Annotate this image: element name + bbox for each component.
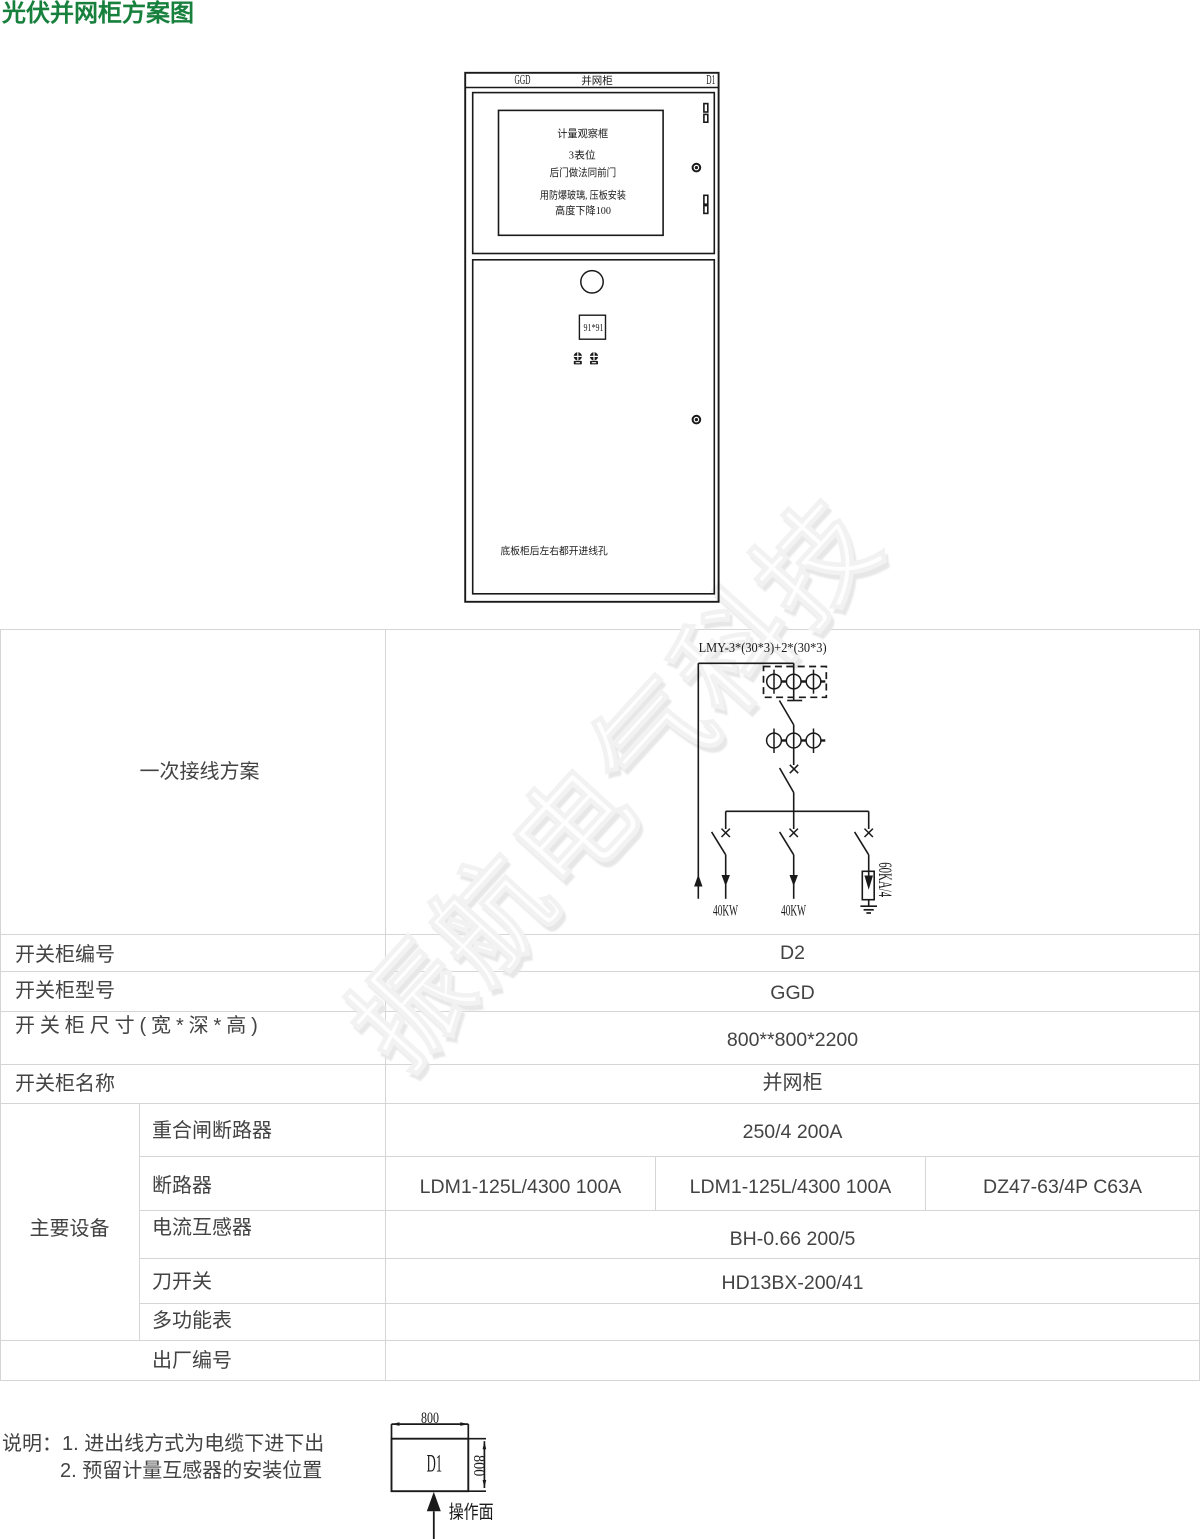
svg-text:800: 800 — [470, 1455, 487, 1477]
svg-text:操作面: 操作面 — [449, 1502, 494, 1523]
svg-text:D1: D1 — [427, 1450, 443, 1477]
svg-text:91*91: 91*91 — [584, 322, 604, 334]
svg-text:60KA/4: 60KA/4 — [874, 862, 895, 897]
svg-text:3表位: 3表位 — [569, 148, 597, 161]
svg-text:并网柜: 并网柜 — [581, 74, 613, 87]
svg-text:40KW: 40KW — [713, 902, 738, 919]
svg-text:800: 800 — [421, 1410, 439, 1427]
svg-text:LMY-3*(30*3)+2*(30*3): LMY-3*(30*3)+2*(30*3) — [699, 641, 827, 656]
svg-text:计量观察框: 计量观察框 — [557, 127, 608, 140]
svg-text:40KW: 40KW — [781, 902, 806, 919]
svg-text:GGD: GGD — [515, 72, 531, 87]
svg-text:高度下降100: 高度下降100 — [555, 204, 611, 217]
svg-text:D1: D1 — [706, 72, 715, 87]
svg-text:底板柜后左右都开进线孔: 底板柜后左右都开进线孔 — [501, 544, 608, 557]
svg-text:后门做法同前门: 后门做法同前门 — [550, 166, 617, 179]
svg-text:用防爆玻璃, 压板安装: 用防爆玻璃, 压板安装 — [540, 189, 626, 202]
